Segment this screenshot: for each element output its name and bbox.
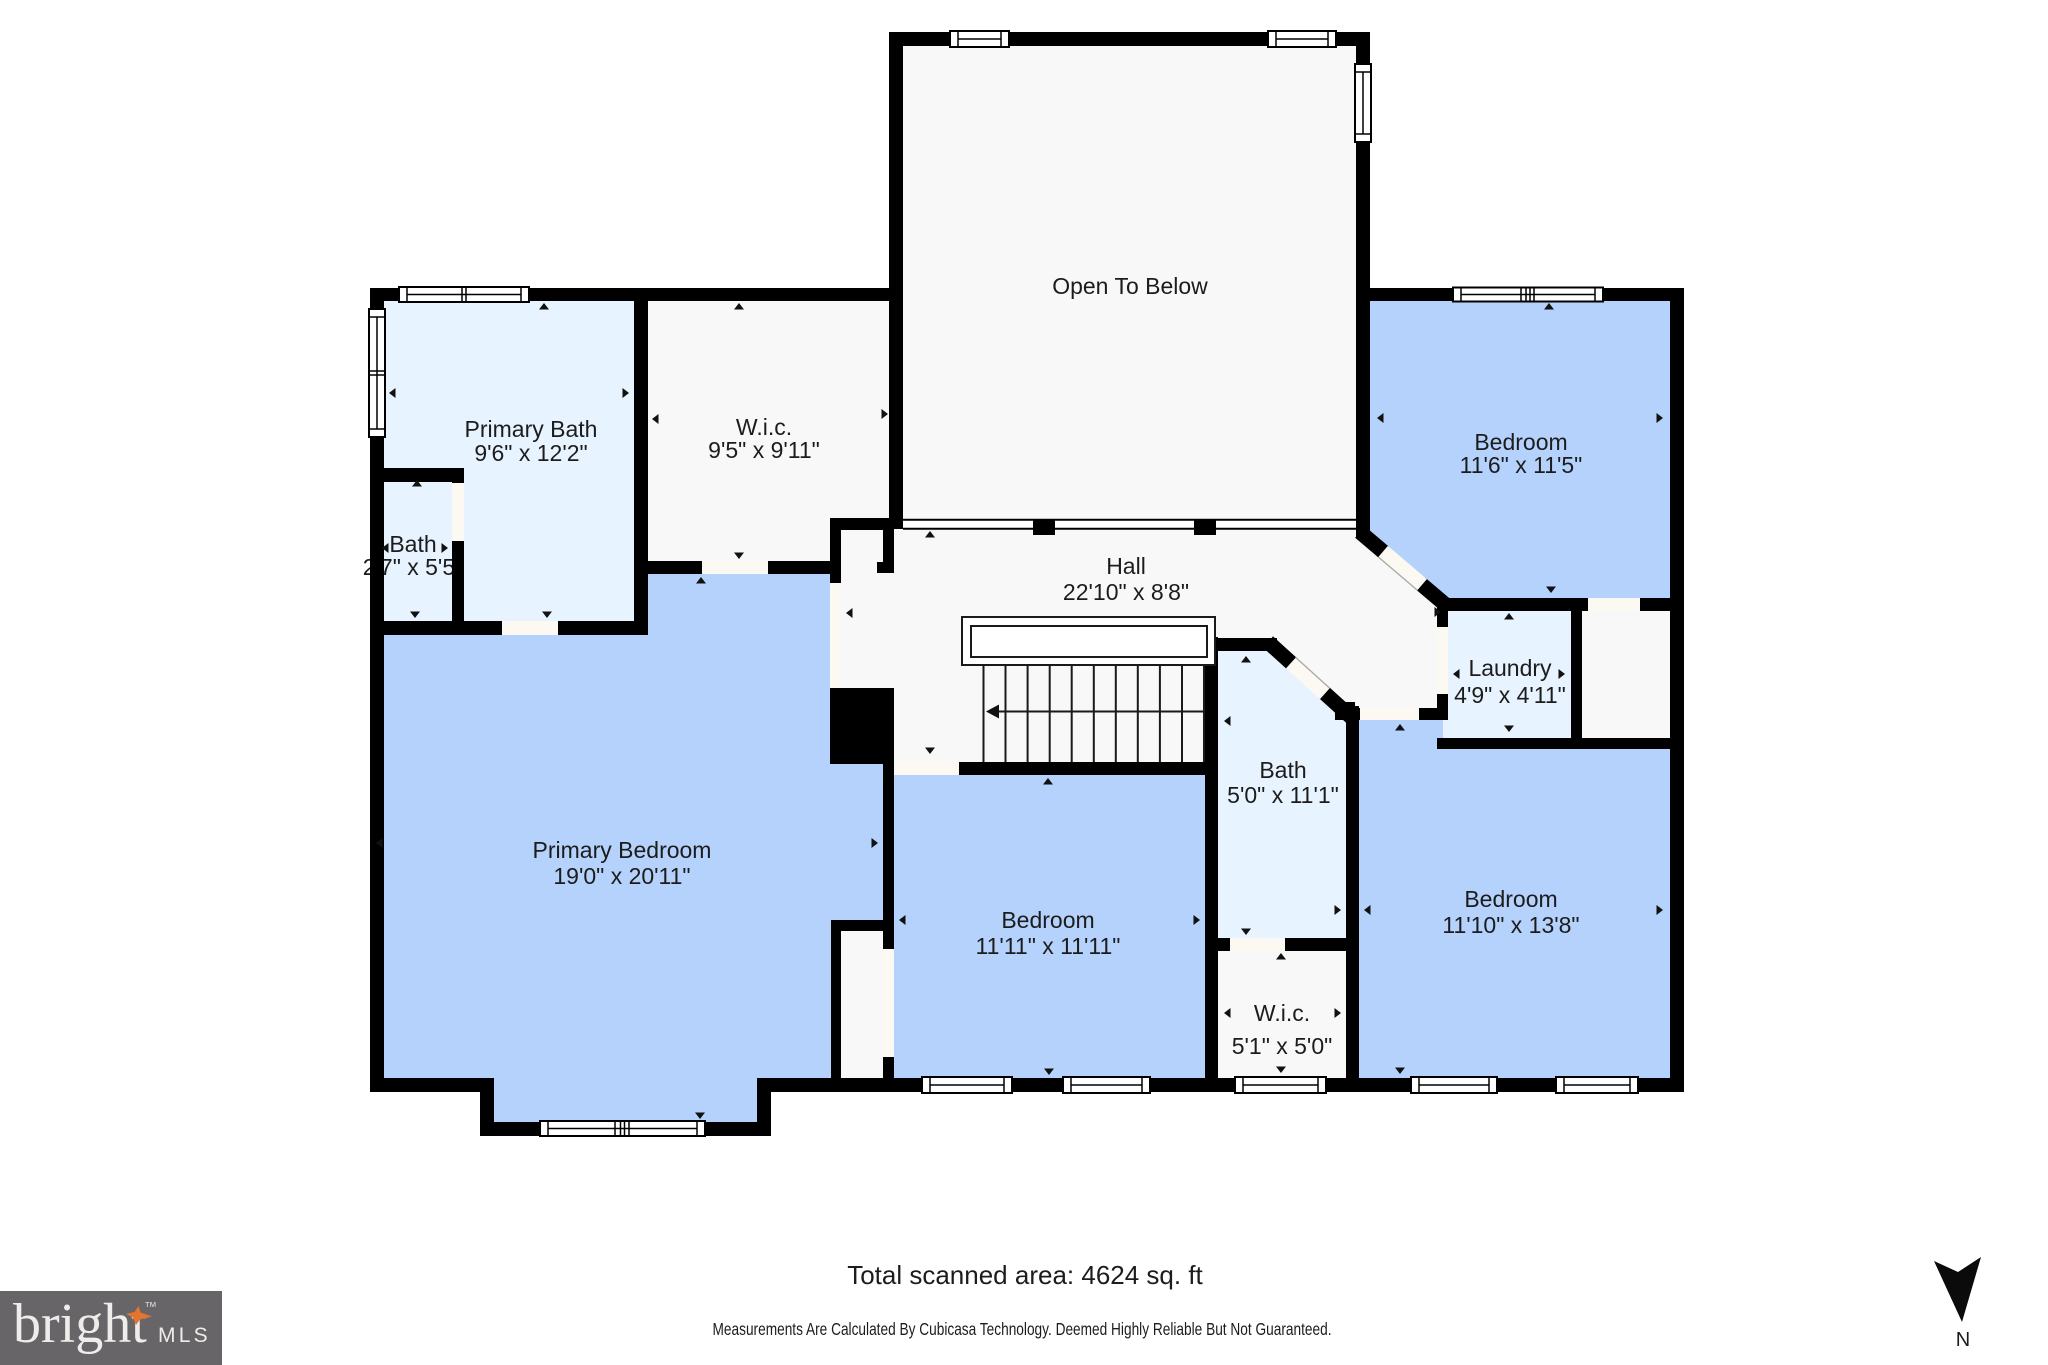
svg-text:Bedroom: Bedroom — [1464, 886, 1557, 912]
svg-text:Measurements Are Calculated By: Measurements Are Calculated By Cubicasa … — [713, 1319, 1332, 1339]
svg-text:Primary Bedroom: Primary Bedroom — [533, 837, 712, 863]
svg-text:Laundry: Laundry — [1468, 655, 1552, 681]
svg-text:MLS: MLS — [158, 1324, 211, 1347]
svg-text:Hall: Hall — [1106, 553, 1146, 579]
svg-text:Bath: Bath — [1259, 757, 1306, 783]
svg-text:5'0" x 11'1": 5'0" x 11'1" — [1227, 782, 1339, 808]
svg-text:N: N — [1956, 1329, 1970, 1351]
svg-text:11'11" x 11'11": 11'11" x 11'11" — [976, 933, 1121, 959]
svg-text:19'0" x 20'11": 19'0" x 20'11" — [553, 863, 690, 889]
svg-text:5'1" x 5'0": 5'1" x 5'0" — [1232, 1033, 1333, 1059]
svg-text:9'5" x 9'11": 9'5" x 9'11" — [708, 437, 820, 463]
svg-text:4'9" x 4'11": 4'9" x 4'11" — [1454, 682, 1566, 708]
svg-text:11'10" x 13'8": 11'10" x 13'8" — [1442, 912, 1579, 938]
svg-text:Primary Bath: Primary Bath — [465, 416, 598, 442]
svg-text:9'6" x 12'2": 9'6" x 12'2" — [474, 440, 587, 466]
svg-text:Total scanned area: 4624 sq. f: Total scanned area: 4624 sq. ft — [847, 1260, 1203, 1290]
svg-text:Bedroom: Bedroom — [1001, 907, 1094, 933]
svg-text:Open To Below: Open To Below — [1052, 273, 1208, 299]
svg-text:™: ™ — [144, 1299, 157, 1314]
svg-text:W.i.c.: W.i.c. — [1254, 1000, 1310, 1026]
svg-text:bright: bright — [13, 1293, 147, 1355]
svg-text:22'10" x 8'8": 22'10" x 8'8" — [1063, 579, 1189, 605]
svg-text:11'6" x 11'5": 11'6" x 11'5" — [1460, 452, 1583, 478]
